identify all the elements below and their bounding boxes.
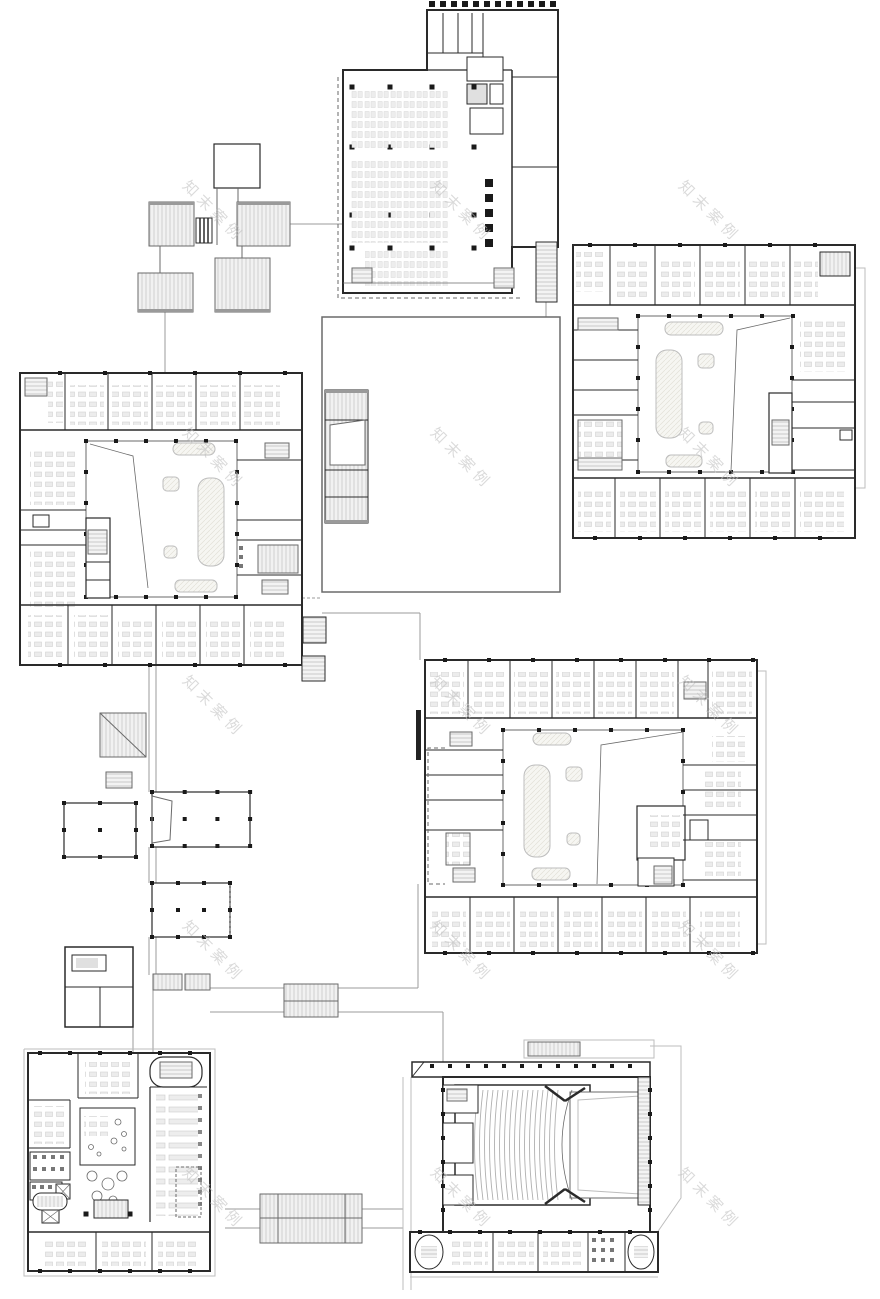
central-court-field	[322, 317, 560, 592]
canteen-building	[338, 1, 558, 302]
watermark-text: 知末案例	[675, 177, 744, 246]
auditorium-building	[410, 1040, 658, 1272]
watermark-text: 知末案例	[675, 1164, 744, 1233]
site-plan-drawing: 知末案例知末案例知末案例知末案例知末案例知末案例知末案例知末案例知末案例知末案例…	[0, 0, 880, 1299]
west-classroom-courtyard-building	[20, 371, 326, 681]
floor-plan-page: 知末案例知末案例知末案例知末案例知末案例知末案例知末案例知末案例知末案例知末案例…	[0, 0, 880, 1299]
watermark-text: 知末案例	[179, 672, 248, 741]
annex-roof-cluster	[138, 144, 290, 312]
library-building	[28, 1051, 210, 1273]
east-classroom-courtyard-building	[573, 243, 855, 540]
